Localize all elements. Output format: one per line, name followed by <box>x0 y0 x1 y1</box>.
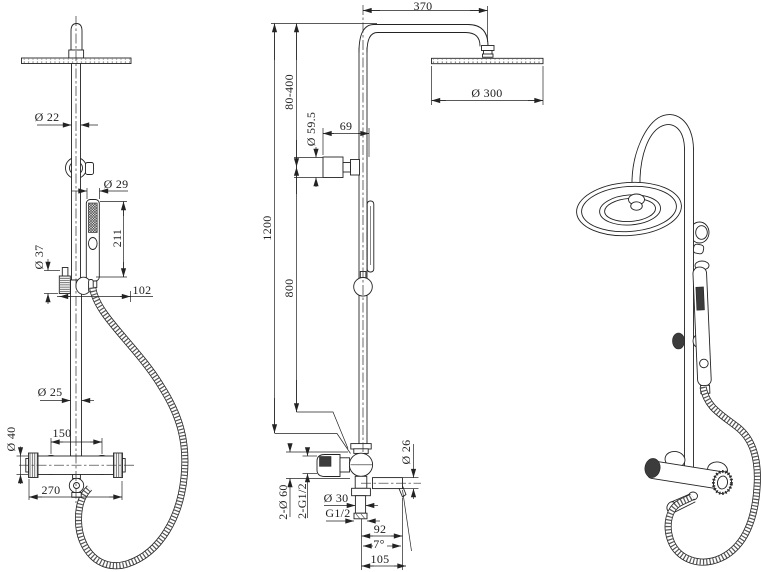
dim-union-thread: 2-G1/2 <box>296 483 308 519</box>
dim-height-range: 80-400 <box>283 74 295 110</box>
dim-spout-reach: 92 <box>374 523 387 535</box>
dim-handset-length: 211 <box>111 229 123 247</box>
drawing-linework <box>0 0 762 572</box>
dim-slider-offset: 102 <box>133 284 152 296</box>
dim-valve-body-diameter: Ø 40 <box>5 427 17 452</box>
dim-flange-diameter: Ø 59.5 <box>305 112 317 146</box>
dim-arm-reach: 370 <box>414 0 433 12</box>
dim-valve-width: 270 <box>42 484 61 496</box>
dim-lower-height: 800 <box>283 279 295 298</box>
dim-inlet-centers: 150 <box>53 427 72 439</box>
dim-bottom-pipe-diameter: Ø 25 <box>38 386 63 398</box>
dim-spout-angle: 7° <box>373 538 384 550</box>
shower-system-technical-drawing: Ø 22 Ø 29 211 Ø 37 102 Ø 25 150 Ø 40 270… <box>0 0 762 572</box>
dim-wall-union-diameter: 2-Ø 60 <box>277 484 289 519</box>
dim-top-pipe-diameter: Ø 22 <box>35 111 60 123</box>
dim-total-height: 1200 <box>261 215 273 240</box>
dim-slider-ring-diameter: Ø 37 <box>33 245 45 270</box>
dim-spout-pipe-diameter: Ø 26 <box>400 440 412 465</box>
dim-handset-head-diameter: Ø 29 <box>104 178 129 190</box>
dim-outlet-thread: G1/2 <box>325 507 350 519</box>
dim-spout-length: 105 <box>371 553 390 565</box>
dim-outlet-diameter: Ø 30 <box>324 492 349 504</box>
dim-head-diameter: Ø 300 <box>471 87 502 99</box>
perspective-view <box>575 115 758 563</box>
dim-wall-offset: 69 <box>340 120 353 132</box>
